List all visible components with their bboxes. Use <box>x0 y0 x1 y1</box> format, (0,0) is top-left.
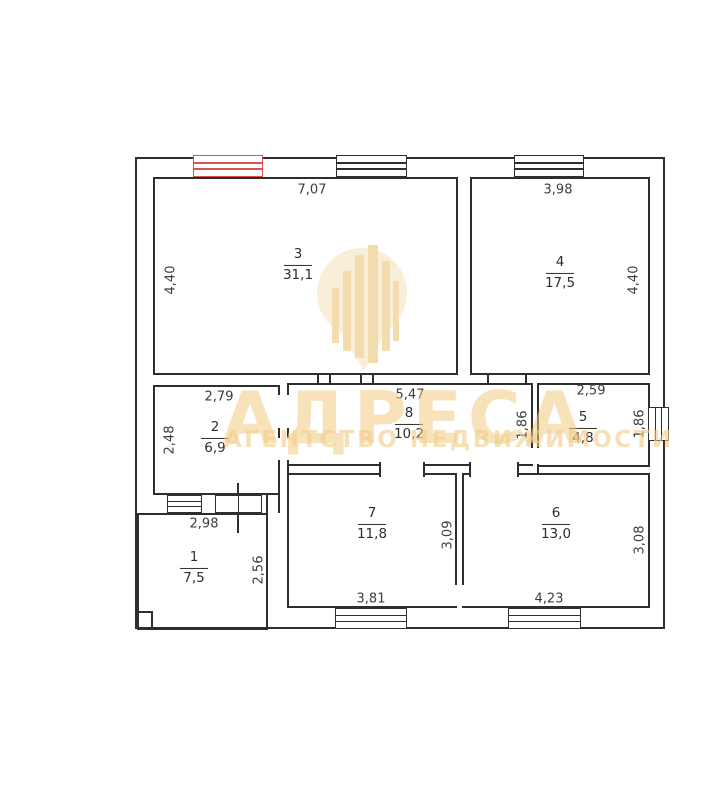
floor-plan: 3 31,1 4 17,5 2 6,9 8 10,2 5 4,8 7 11,8 … <box>0 0 728 800</box>
door-opening-corridor-to-room7 <box>381 460 423 478</box>
window-entry <box>167 495 202 513</box>
wall-segment <box>537 465 539 475</box>
room-5-number: 5 <box>569 409 597 429</box>
room-7-number: 7 <box>358 505 386 525</box>
window-room3 <box>336 155 407 177</box>
room-4-area: 17,5 <box>545 274 575 293</box>
dim-label: 1,86 <box>516 411 531 440</box>
door-opening-room7-room6 <box>453 585 465 606</box>
room-2-area: 6,9 <box>201 439 229 458</box>
door-jamb <box>317 375 319 383</box>
room-5-area: 4,8 <box>569 429 597 448</box>
room-3-number: 3 <box>284 246 312 266</box>
room-6-area: 13,0 <box>541 525 571 544</box>
dim-label: 2,59 <box>577 384 606 399</box>
dim-label: 3,81 <box>357 592 386 607</box>
wall-segment <box>287 464 289 475</box>
door-opening-room2-lower <box>275 438 290 460</box>
dim-label: 1,86 <box>633 410 648 439</box>
window-room5-right <box>648 407 669 441</box>
door-jamb <box>423 462 425 477</box>
room-7-area: 11,8 <box>357 525 387 544</box>
window-room7 <box>335 608 407 629</box>
door-jamb <box>360 375 362 383</box>
dim-label: 4,23 <box>535 592 564 607</box>
window-highlighted-red <box>193 155 263 177</box>
room-5-label: 5 4,8 <box>569 409 597 447</box>
room-3-area: 31,1 <box>283 266 313 285</box>
door-opening-corridor-to-room6 <box>471 460 517 478</box>
room-1-area: 7,5 <box>180 569 208 588</box>
room-8-number: 8 <box>395 405 423 425</box>
dim-label: 4,40 <box>164 266 179 295</box>
room-1-label: 1 7,5 <box>180 549 208 587</box>
dim-label: 2,79 <box>205 390 234 405</box>
door-jamb <box>469 462 471 477</box>
dim-label: 3,08 <box>633 526 648 555</box>
room-4-label: 4 17,5 <box>545 254 575 292</box>
room-8-label: 8 10,2 <box>394 405 424 443</box>
window-room4 <box>514 155 584 177</box>
door-opening-corridor-to-room5 <box>529 448 541 464</box>
corner-column <box>137 611 153 629</box>
dim-label: 5,47 <box>396 388 425 403</box>
wall-segment <box>278 495 280 513</box>
door-jamb <box>487 375 489 383</box>
wall-segment <box>266 495 268 513</box>
room-6-number: 6 <box>542 505 570 525</box>
door-jamb <box>379 462 381 477</box>
room-4-number: 4 <box>546 254 574 274</box>
dim-label: 3,98 <box>544 183 573 198</box>
dim-label: 7,07 <box>298 183 327 198</box>
door-jamb <box>372 375 374 383</box>
dim-label: 3,09 <box>441 521 456 550</box>
room-7-label: 7 11,8 <box>357 505 387 543</box>
room-2-label: 2 6,9 <box>201 419 229 457</box>
door-jamb <box>517 462 519 477</box>
room-3-label: 3 31,1 <box>283 246 313 284</box>
window-room6 <box>508 608 581 629</box>
dim-label: 2,98 <box>190 517 219 532</box>
dim-label: 2,56 <box>252 556 267 585</box>
door-jamb <box>525 375 527 383</box>
entry-door-frame <box>215 495 262 513</box>
door-jamb <box>329 375 331 383</box>
room-6-label: 6 13,0 <box>541 505 571 543</box>
door-opening-room2-upper <box>275 395 290 428</box>
room-8-area: 10,2 <box>394 425 424 444</box>
room-1-number: 1 <box>180 549 208 569</box>
dim-label: 4,40 <box>627 266 642 295</box>
dim-label: 2,48 <box>163 426 178 455</box>
room-2-number: 2 <box>201 419 229 439</box>
